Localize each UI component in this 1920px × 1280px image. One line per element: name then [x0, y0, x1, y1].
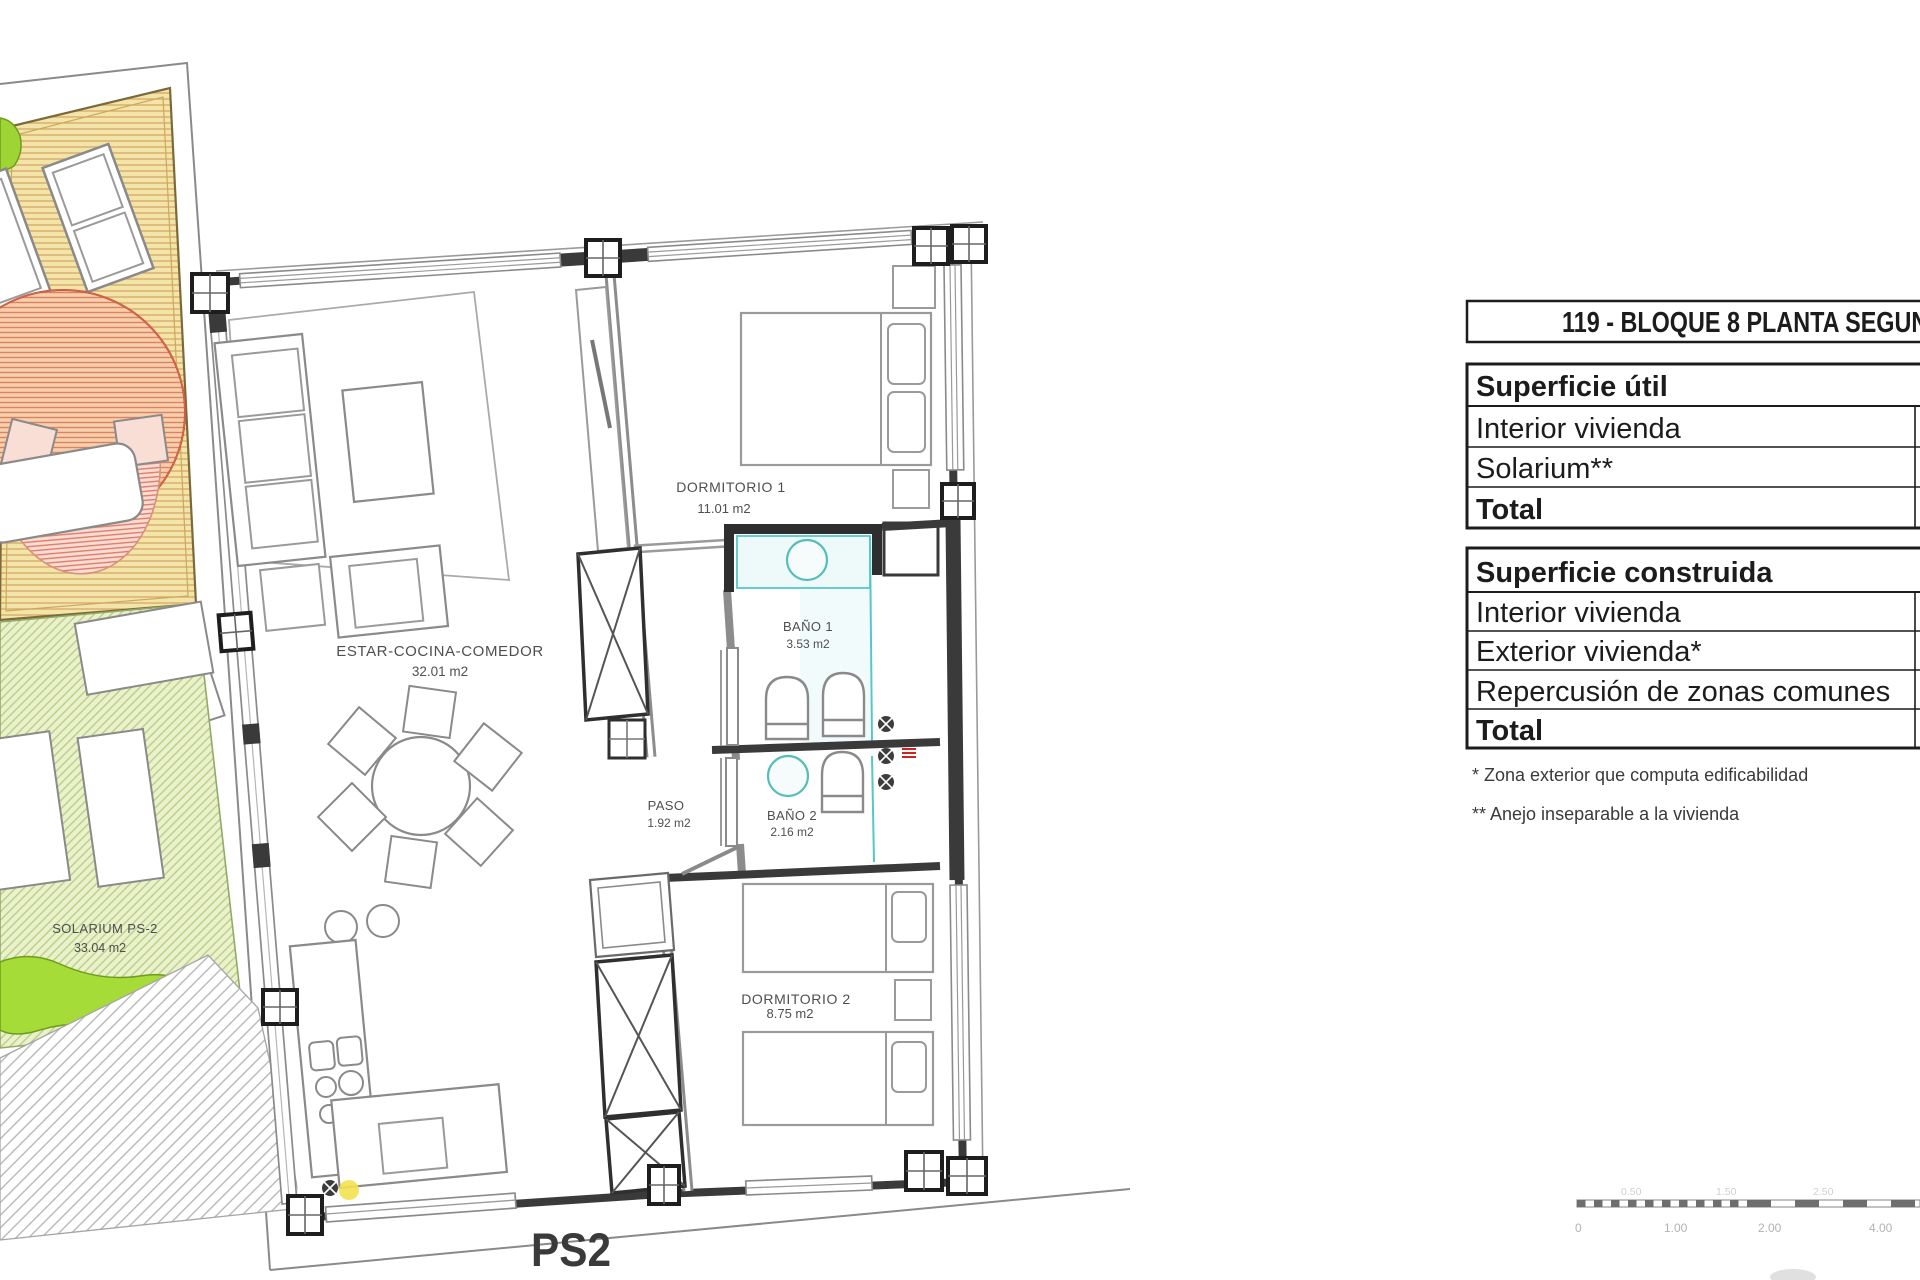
svg-text:DORMITORIO 2: DORMITORIO 2: [741, 991, 851, 1007]
svg-text:Interior vivienda: Interior vivienda: [1476, 413, 1682, 445]
svg-text:32.01 m2: 32.01 m2: [412, 664, 468, 679]
svg-text:119 - BLOQUE 8 PLANTA SEGUNDA: 119 - BLOQUE 8 PLANTA SEGUNDA: [1562, 307, 1920, 339]
svg-text:2.00: 2.00: [1758, 1221, 1782, 1235]
svg-text:Superficie útil: Superficie útil: [1476, 371, 1668, 403]
svg-text:3.53 m2: 3.53 m2: [786, 637, 830, 651]
svg-text:Total: Total: [1476, 494, 1543, 526]
svg-text:PS2: PS2: [531, 1223, 611, 1276]
svg-text:11.01 m2: 11.01 m2: [697, 501, 750, 516]
svg-text:** Anejo inseparable a la vivi: ** Anejo inseparable a la vivienda: [1472, 804, 1740, 824]
svg-text:ESTAR-COCINA-COMEDOR: ESTAR-COCINA-COMEDOR: [336, 643, 544, 660]
svg-text:BAÑO 2: BAÑO 2: [767, 808, 817, 823]
svg-text:BAÑO 1: BAÑO 1: [783, 619, 833, 634]
svg-text:PASO: PASO: [648, 798, 685, 813]
svg-text:* Zona exterior que computa ed: * Zona exterior que computa edificabilid…: [1472, 765, 1808, 785]
svg-text:DORMITORIO 1: DORMITORIO 1: [676, 479, 786, 495]
svg-text:0.50: 0.50: [1621, 1186, 1642, 1198]
svg-text:Repercusión de zonas comunes: Repercusión de zonas comunes: [1476, 676, 1890, 708]
svg-text:Interior vivienda: Interior vivienda: [1476, 597, 1682, 629]
svg-text:1.00: 1.00: [1664, 1221, 1688, 1235]
svg-text:1.50: 1.50: [1716, 1186, 1737, 1198]
svg-text:8.75 m2: 8.75 m2: [767, 1006, 814, 1021]
svg-text:SOLARIUM PS-2: SOLARIUM PS-2: [52, 921, 158, 936]
svg-text:2.50: 2.50: [1813, 1186, 1834, 1198]
svg-text:Total: Total: [1476, 715, 1543, 747]
svg-text:4.00: 4.00: [1869, 1221, 1893, 1235]
svg-text:1.92 m2: 1.92 m2: [647, 816, 691, 830]
svg-text:Solarium**: Solarium**: [1476, 453, 1613, 485]
svg-text:2.16 m2: 2.16 m2: [770, 825, 814, 839]
svg-text:33.04 m2: 33.04 m2: [74, 941, 126, 955]
svg-text:Exterior vivienda*: Exterior vivienda*: [1476, 636, 1702, 668]
svg-text:Superficie construida: Superficie construida: [1476, 557, 1773, 589]
svg-text:0: 0: [1575, 1221, 1582, 1235]
